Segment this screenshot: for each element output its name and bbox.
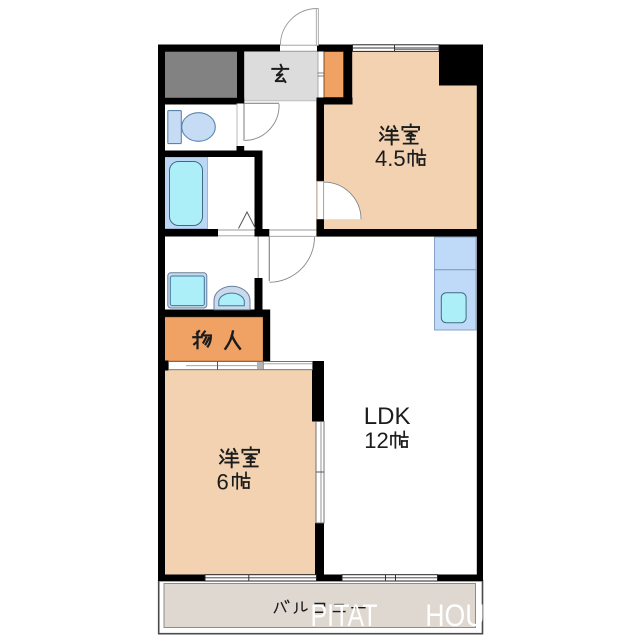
svg-text:12: 12 — [364, 428, 388, 453]
svg-text:6: 6 — [217, 470, 229, 495]
svg-text:HOUSE: HOUSE — [425, 597, 520, 633]
svg-text:LDK: LDK — [364, 403, 411, 430]
svg-text:4.5: 4.5 — [375, 146, 406, 171]
svg-text:PITAT: PITAT — [311, 597, 378, 633]
